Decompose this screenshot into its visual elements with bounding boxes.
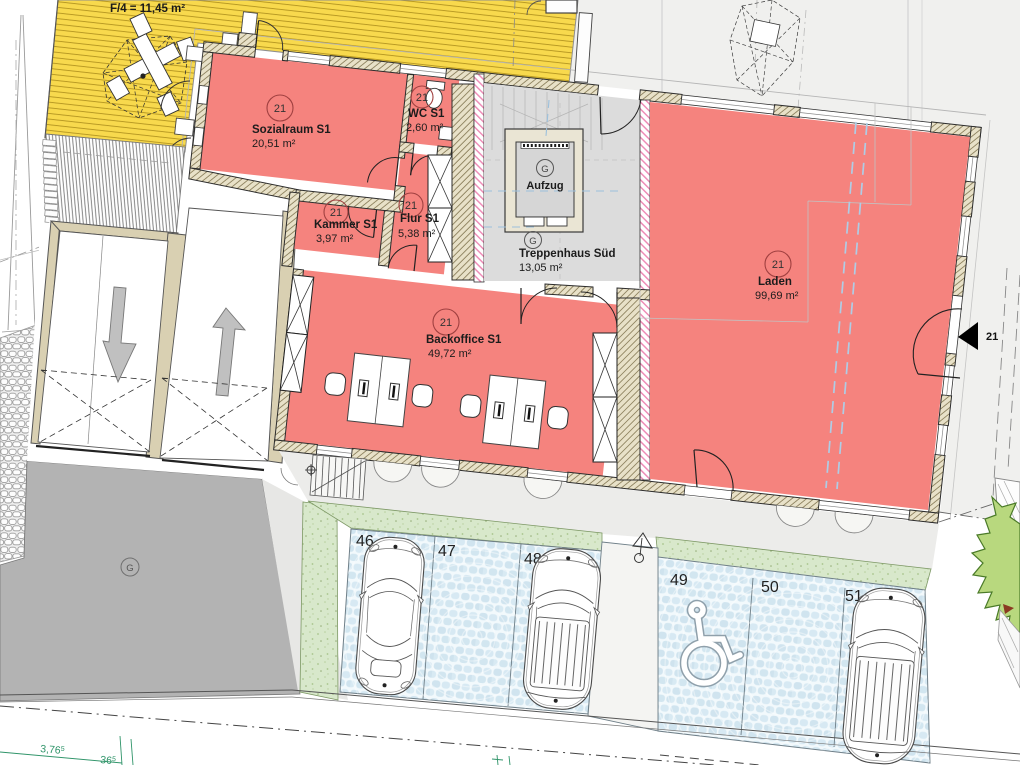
svg-text:Laden: Laden [758,276,792,288]
svg-text:50: 50 [761,579,779,596]
svg-text:Flur S1: Flur S1 [400,213,440,225]
svg-text:47: 47 [438,543,456,560]
svg-text:5,38 m²: 5,38 m² [398,228,436,240]
svg-text:Treppenhaus Süd: Treppenhaus Süd [519,248,616,260]
svg-text:49: 49 [670,572,688,589]
svg-text:21: 21 [772,259,784,271]
svg-text:G: G [541,164,548,175]
svg-text:20,51 m²: 20,51 m² [252,138,296,150]
svg-text:WC S1: WC S1 [408,108,445,120]
svg-text:99,69 m²: 99,69 m² [755,290,799,302]
svg-text:G: G [126,563,133,574]
svg-text:Kammer S1: Kammer S1 [314,219,378,231]
svg-text:21: 21 [986,331,998,343]
svg-text:13,05 m²: 13,05 m² [519,262,563,274]
svg-text:21: 21 [274,103,286,115]
svg-text:21: 21 [330,207,342,219]
svg-text:Sozialraum S1: Sozialraum S1 [252,124,331,136]
svg-text:49,72 m²: 49,72 m² [428,348,472,360]
svg-text:3,97 m²: 3,97 m² [316,233,354,245]
svg-text:21: 21 [440,317,452,329]
svg-text:21: 21 [405,200,417,212]
svg-text:Aufzug: Aufzug [526,180,563,192]
svg-text:F/4 = 11,45 m²: F/4 = 11,45 m² [110,3,185,15]
svg-text:G: G [529,236,536,247]
svg-text:21: 21 [416,92,428,104]
svg-text:Backoffice S1: Backoffice S1 [426,334,502,346]
svg-text:2,60 m²: 2,60 m² [406,122,444,134]
